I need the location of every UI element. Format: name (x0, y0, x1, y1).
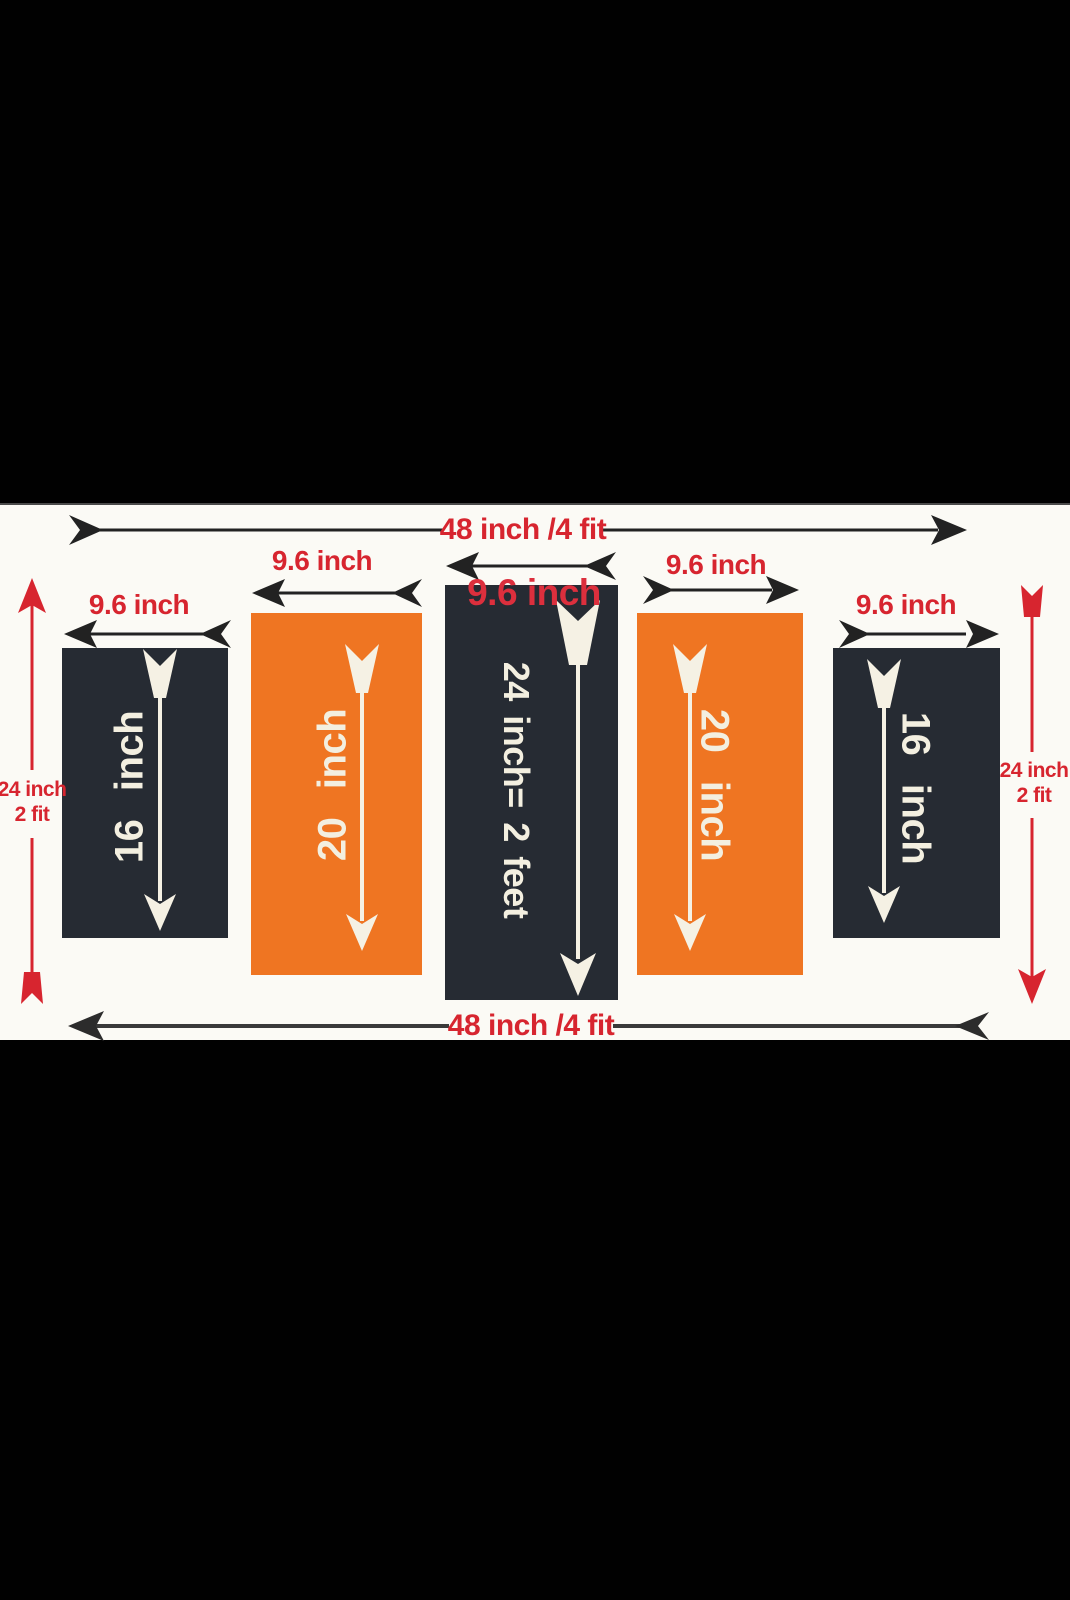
right-height-label-line1: 24 inch (1000, 759, 1069, 784)
height-arrow-far-right (867, 659, 901, 923)
width-arrow-mid-left (252, 579, 422, 607)
right-height-label-line2: 2 fit (1000, 784, 1069, 809)
width-arrow-far-left (64, 620, 231, 648)
bottom-width-label: 48 inch /4 fit (448, 1009, 614, 1043)
width-label-center: 9.6 inch (467, 572, 601, 614)
right-height-label: 24 inch 2 fit (1000, 759, 1069, 809)
width-label-far-left: 9.6 inch (89, 589, 189, 621)
width-label-mid-right: 9.6 inch (666, 549, 766, 581)
left-height-label: 24 inch 2 fit (0, 778, 66, 828)
width-label-far-right: 9.6 inch (856, 589, 956, 621)
width-label-mid-left: 9.6 inch (272, 545, 372, 577)
top-width-label: 48 inch /4 fit (440, 513, 606, 547)
height-arrow-far-left (143, 649, 177, 931)
width-arrow-far-right (839, 620, 999, 648)
left-height-label-line2: 2 fit (0, 803, 66, 828)
height-arrow-center (556, 600, 600, 996)
height-arrow-mid-left (345, 644, 379, 951)
dimension-arrows-layer (0, 0, 1070, 1600)
panel-dimension-diagram: 16 inch 20 inch 24 inch= 2 feet 20 inch … (0, 0, 1070, 1600)
height-arrow-mid-right (673, 644, 707, 951)
left-height-label-line1: 24 inch (0, 778, 66, 803)
